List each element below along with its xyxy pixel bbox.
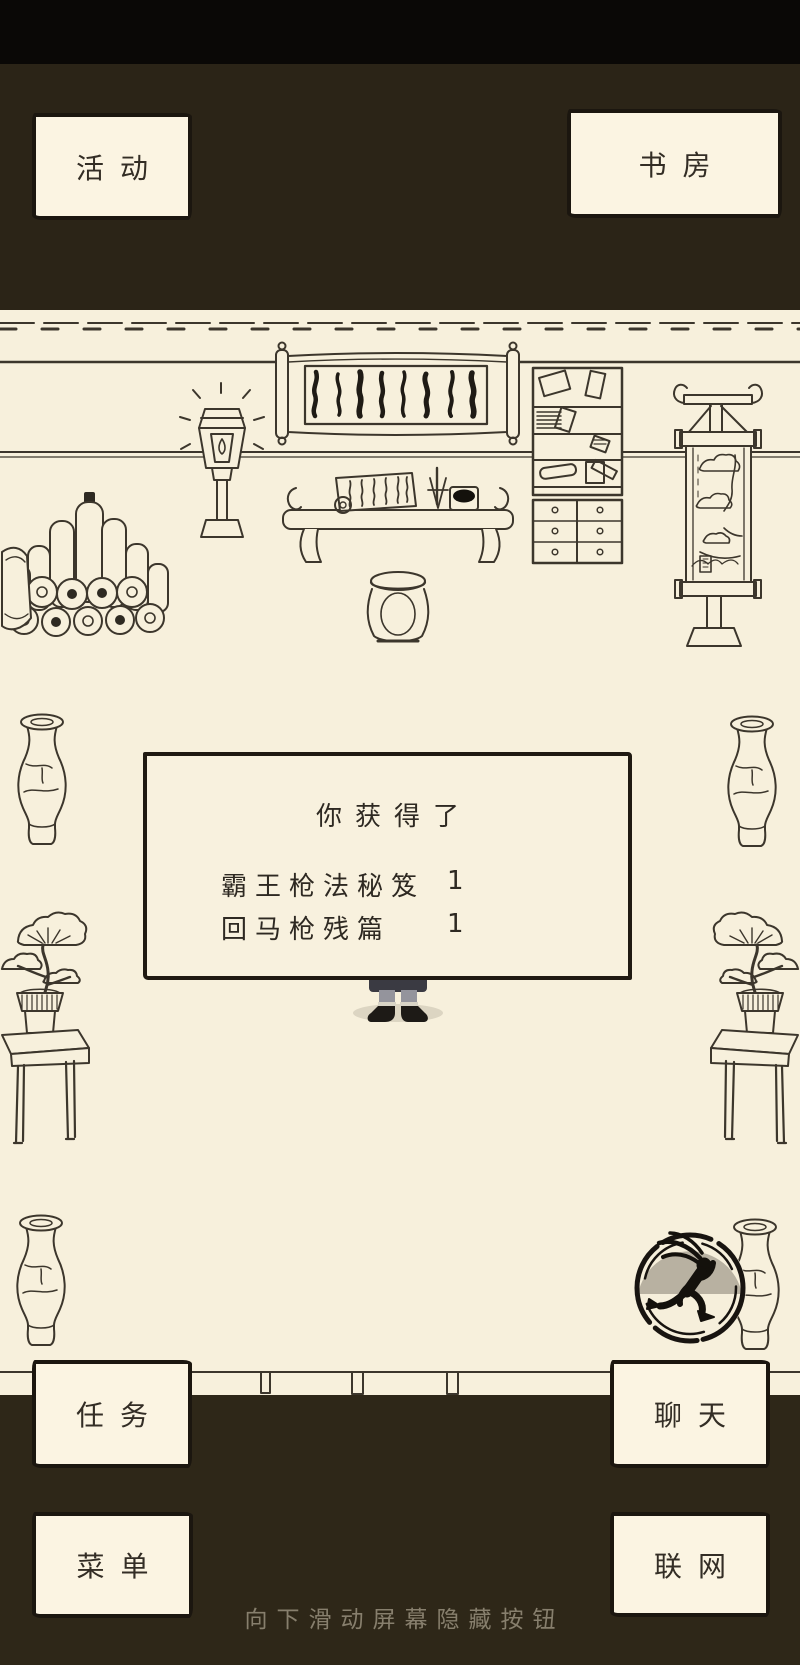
bonsai-left [2, 913, 89, 1143]
scroll-pile [2, 492, 168, 636]
writing-desk [283, 468, 513, 562]
scroll-stand [674, 385, 762, 646]
reward-item-row: 回马枪残篇 1 [147, 909, 628, 939]
swipe-hint-text: 向下滑动屏幕隐藏按钮 [0, 1600, 800, 1634]
lantern [180, 383, 264, 537]
tasks-button[interactable]: 任务 [32, 1360, 192, 1468]
vase-top-right [728, 717, 775, 847]
game-screen: 活动 书房 你获得了 霸王枪法秘笈 1 回马枪残篇 1 任务 聊天 菜单 联网 … [0, 0, 800, 1665]
reward-dialog[interactable]: 你获得了 霸王枪法秘笈 1 回马枪残篇 1 [143, 752, 632, 980]
wall-calligraphy-scroll [276, 343, 519, 445]
vase-bottom-left [17, 1216, 64, 1346]
bonsai-right [711, 913, 798, 1143]
reward-item-count: 1 [447, 866, 464, 896]
study-room-button[interactable]: 书房 [567, 109, 782, 218]
reward-item-name: 回马枪残篇 [221, 909, 391, 946]
vase-top-left [18, 715, 65, 845]
bookshelf [533, 368, 622, 563]
reward-item-name: 霸王枪法秘笈 [221, 866, 425, 903]
activity-button[interactable]: 活动 [32, 113, 192, 220]
reward-dialog-title: 你获得了 [147, 796, 628, 833]
chat-button[interactable]: 聊天 [610, 1360, 770, 1468]
reward-item-row: 霸王枪法秘笈 1 [147, 866, 628, 896]
stool [368, 572, 429, 641]
reward-item-count: 1 [447, 909, 464, 939]
run-icon[interactable] [634, 1232, 746, 1344]
